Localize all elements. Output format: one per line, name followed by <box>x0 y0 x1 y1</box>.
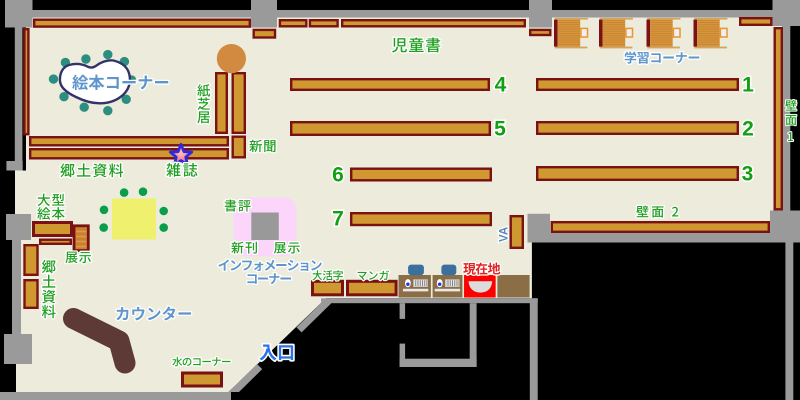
svg-text:4: 4 <box>495 74 507 97</box>
svg-text:2: 2 <box>742 117 754 140</box>
svg-text:1: 1 <box>742 73 754 96</box>
svg-text:7: 7 <box>332 207 344 230</box>
svg-text:6: 6 <box>332 163 344 186</box>
svg-text:3: 3 <box>742 163 754 186</box>
svg-text:VA: VA <box>499 227 511 242</box>
svg-text:5: 5 <box>494 118 506 141</box>
